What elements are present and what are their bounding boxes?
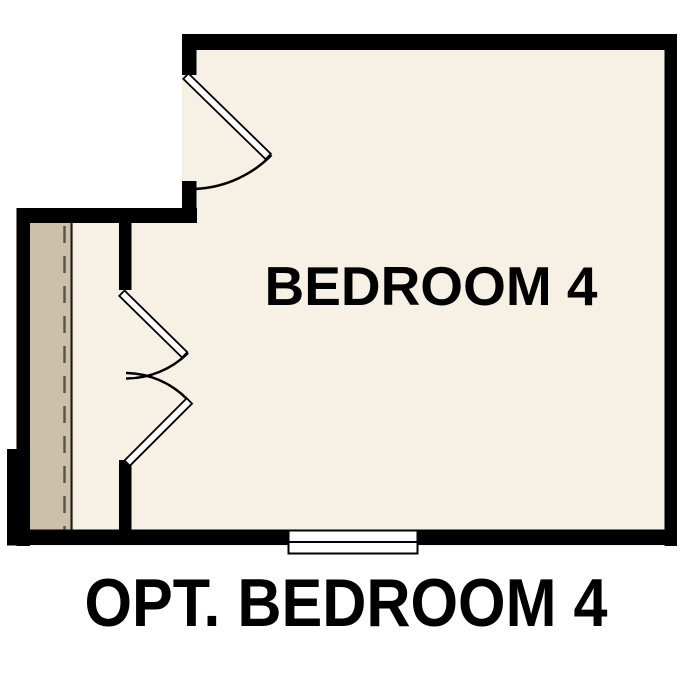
floor-plan: BEDROOM 4 OPT. BEDROOM 4	[0, 0, 687, 687]
wall-left-step-out	[7, 449, 19, 546]
plan-caption: OPT. BEDROOM 4	[85, 565, 608, 641]
wall-bottom-left-segment	[7, 530, 289, 546]
hall-strip	[29, 223, 73, 530]
wall-bedroom-left-upper-stub	[182, 34, 197, 75]
room-label: BEDROOM 4	[265, 255, 598, 317]
wall-top	[182, 34, 677, 50]
wall-annex-top	[17, 208, 198, 223]
wall-closet-lower-stub	[119, 460, 132, 530]
wall-closet-upper-stub	[119, 223, 132, 290]
wall-bottom-right-segment	[417, 530, 677, 546]
wall-right	[665, 34, 678, 546]
window-symbol	[289, 531, 418, 554]
wall-bedroom-left-lower-stub	[182, 181, 197, 223]
floor-plan-svg: BEDROOM 4 OPT. BEDROOM 4	[0, 0, 687, 687]
